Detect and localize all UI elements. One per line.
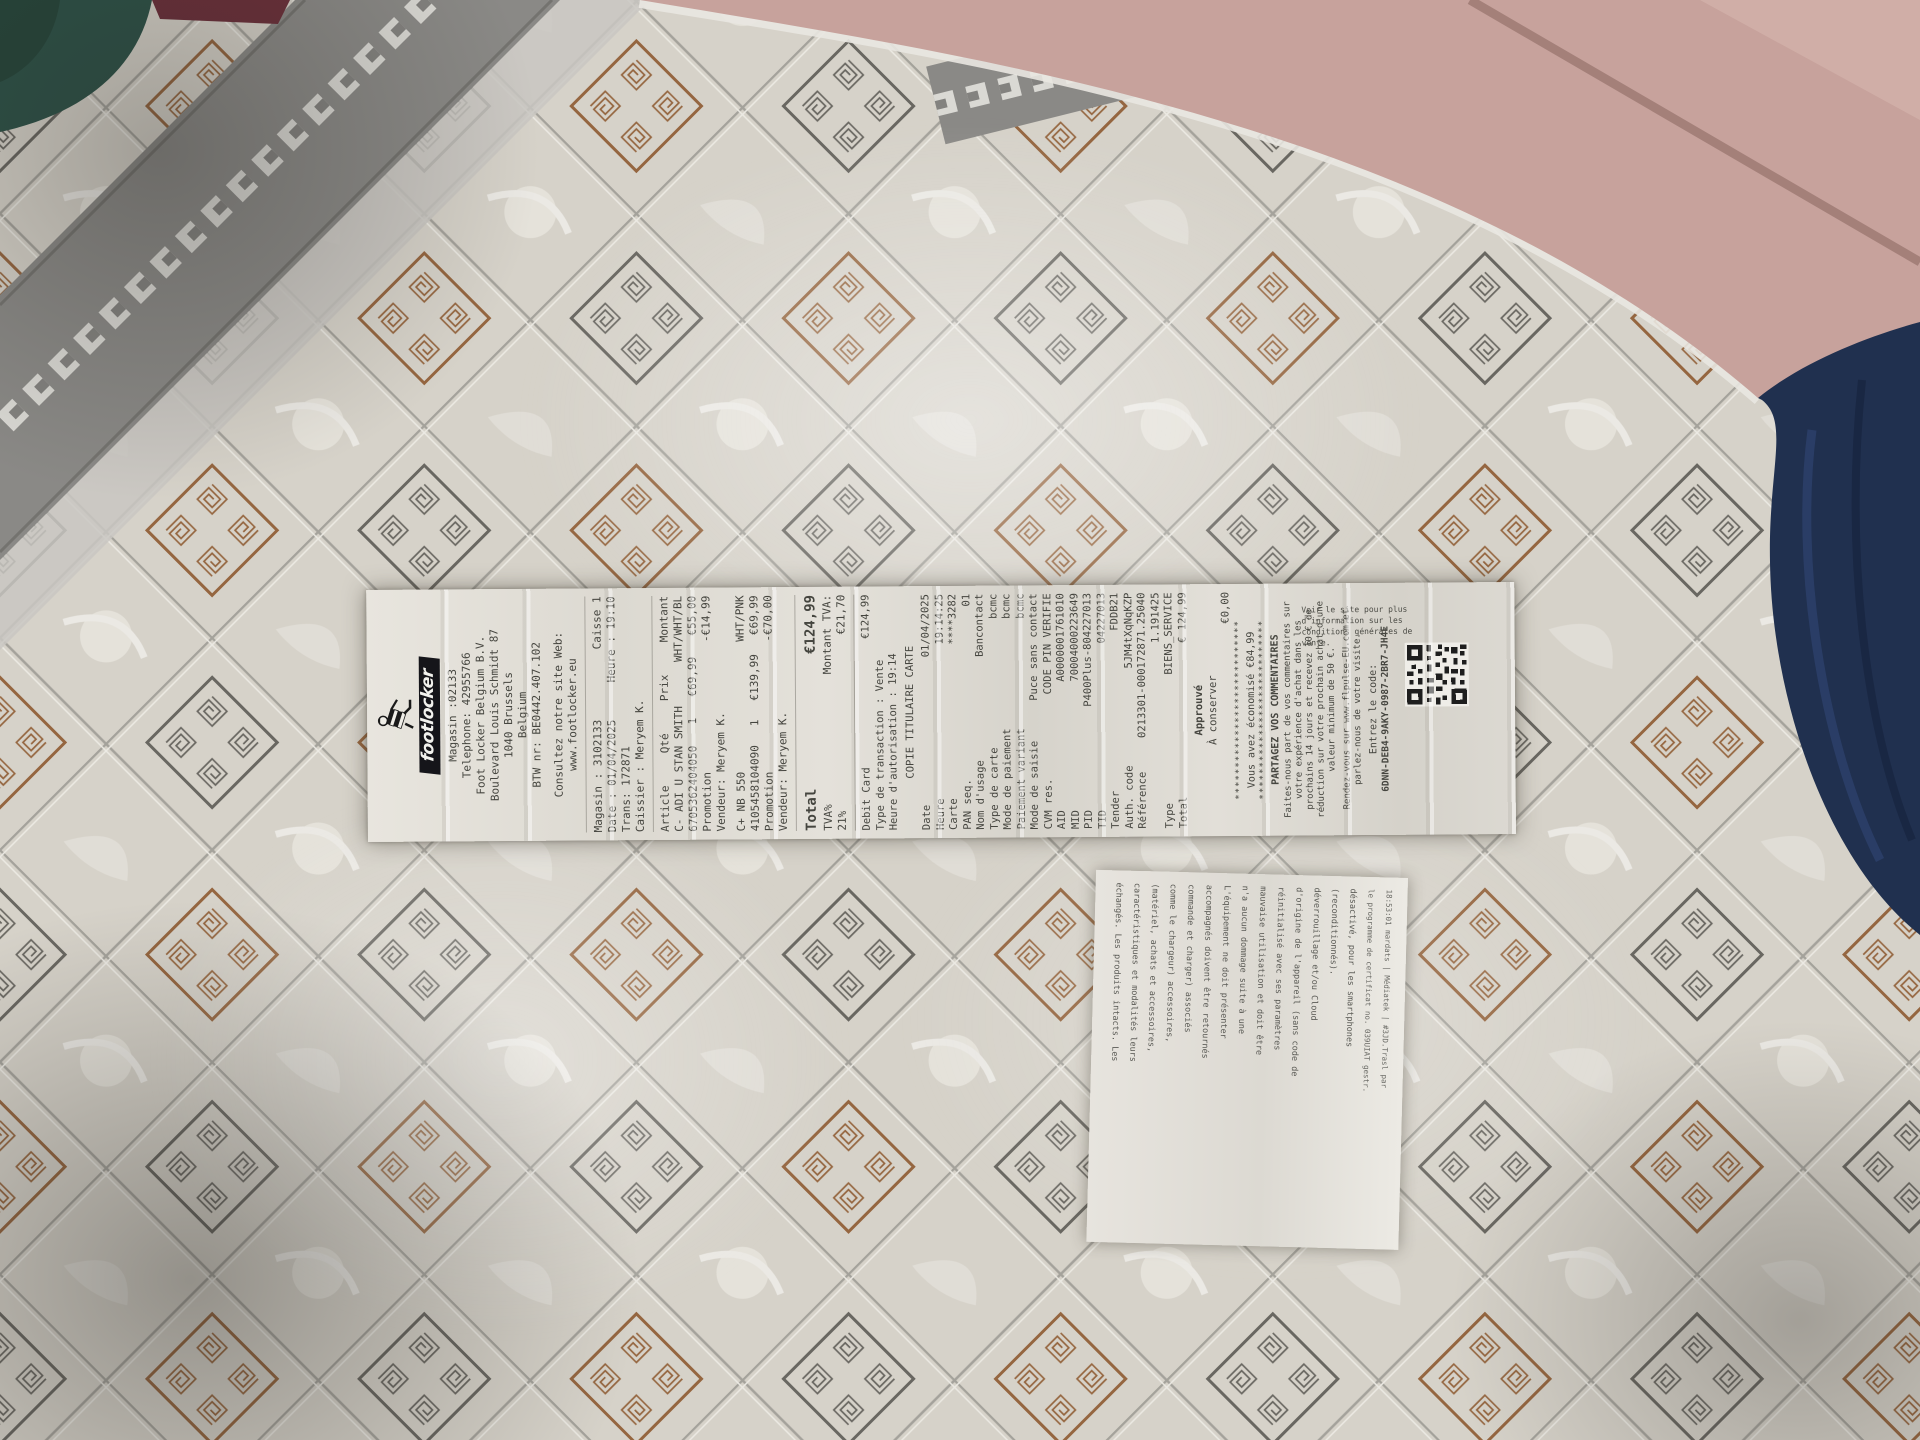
tva-rate: 21% <box>836 811 850 831</box>
item-price: €139,99 <box>748 654 762 700</box>
photo-scene: footlocker Magasin :02133 Telephone: 429… <box>0 0 1920 1440</box>
footlocker-logo: footlocker <box>376 597 441 833</box>
referee-icon <box>377 694 417 738</box>
payment-method: Debit Card <box>860 767 874 830</box>
info-cell: Magasin : 3102133 <box>591 720 606 833</box>
pay-label: Date <box>921 805 935 830</box>
item-amount: €55,00 <box>685 596 699 636</box>
col-price: Prix <box>658 675 672 702</box>
divider <box>853 595 856 831</box>
info-cell: Heure : 19:10 <box>604 596 619 682</box>
tva-amount-label: Montant TVA: <box>820 595 835 675</box>
item-amount: €69,99 <box>747 595 761 635</box>
pay-value: P400Plus-804227013 <box>1081 593 1095 707</box>
stars-divider: **************************** <box>1257 592 1270 828</box>
pay-label: AID <box>1056 810 1070 829</box>
pay-label: Référence <box>1137 772 1164 829</box>
pay-value: 04227013 <box>1095 593 1109 644</box>
seller: Vendeur: Meryem K. <box>714 712 728 831</box>
item-qty: 1 <box>748 719 762 726</box>
store-line: www.footlocker.eu <box>565 597 581 833</box>
seller: Vendeur: Meryem K. <box>776 712 790 831</box>
total-label: Total <box>802 789 822 831</box>
tva-section: TVA%Montant TVA: 21%€21,70 <box>820 595 850 831</box>
info-cell: Caisse 1 <box>590 596 604 649</box>
item-price: €69,99 <box>686 657 700 697</box>
pay-label: Paiement variant <box>1015 728 1029 829</box>
total-amount: €124,99 <box>800 595 820 654</box>
pay-label: CVM res. <box>1042 779 1056 830</box>
receipt: footlocker Magasin :02133 Telephone: 429… <box>366 582 1516 842</box>
item-color: WHT/PNK <box>733 595 747 641</box>
payment-amount: €124,99 <box>859 594 873 638</box>
pay-label: MID <box>1069 810 1083 829</box>
item-sku: 6705362404050 <box>686 746 701 832</box>
pay-label: TID <box>1096 810 1110 829</box>
divider <box>794 595 797 831</box>
promo-amount: -€14,99 <box>699 596 713 642</box>
pay-value: CODE PIN VERIFIE <box>1041 593 1055 694</box>
tva-amount: €21,70 <box>834 595 848 635</box>
store-header: Magasin :02133 Telephone: 42955766 Foot … <box>445 597 581 834</box>
pay-value: 5JM4tXqNqKZP <box>1122 593 1136 669</box>
conditions-side-note: Voir le site pour plus d'information sur… <box>1301 604 1439 629</box>
terms-leaflet: 18:53:01 mardats | Médiatek | #3JD.Trasl… <box>1086 870 1408 1250</box>
item-row: C- ADI U STAN SMITHWHT/WHT/BL 6705362404… <box>671 595 729 831</box>
item-name: C+ NB 550 <box>735 772 749 832</box>
pay-value: ****3282 <box>946 594 960 645</box>
item-row: C+ NB 550WHT/PNK 41054581040901€139,99€6… <box>733 595 791 831</box>
pay-value: bcmc <box>987 594 1001 619</box>
item-color: WHT/WHT/BL <box>671 596 685 662</box>
divider <box>651 596 654 832</box>
col-amount: Montant <box>657 596 671 642</box>
pay-value: 01 <box>960 594 974 607</box>
auth-time: Heure d'autorisation : 19:14 <box>886 594 901 830</box>
pay-label: Nom d'usage <box>974 760 988 830</box>
total-row: Total €124,99 <box>800 595 822 831</box>
pay-value: A0000001761010 <box>1054 593 1068 682</box>
col-article: Article <box>659 786 673 832</box>
info-cell: Trans: 172871 <box>619 746 634 832</box>
pay-value: BIENS_SERVICE <box>1162 592 1176 674</box>
brand-box: footlocker <box>419 656 441 775</box>
pay-value: Puce sans contact <box>1027 593 1041 701</box>
pay-label: Tender <box>1110 791 1124 829</box>
pay-label: Type de carte <box>988 747 1002 829</box>
pay-label: Total <box>1177 797 1191 829</box>
qr-code <box>1404 642 1468 706</box>
item-qty: 1 <box>686 718 700 725</box>
pay-value: 01/04/2025 <box>919 594 933 657</box>
pay-value: € 124,99 <box>1176 592 1190 643</box>
pay-value: 19:14:25 <box>933 594 947 645</box>
payment-section: Debit Card€124,99 Type de transaction : … <box>859 592 1234 831</box>
store-line: Boulevard Louis Schmidt 87 <box>487 597 503 833</box>
info-cell: Date : 01/04/2025 <box>605 720 620 833</box>
item-name: C- ADI U STAN SMITH <box>672 706 687 832</box>
pay-value: 0213301-000172871.250401.191425 <box>1135 592 1163 742</box>
pay-label: Auth. code <box>1123 765 1137 828</box>
divider <box>584 596 587 832</box>
stars-divider: **************************** <box>1233 592 1246 828</box>
pay-label: Type <box>1164 803 1178 828</box>
pay-value: bcmc <box>1000 593 1014 618</box>
promo-label: Promotion <box>701 772 715 832</box>
col-qty: Qté <box>658 733 672 753</box>
pay-value: FDDB21 <box>1108 593 1122 631</box>
pay-label: PID <box>1083 810 1097 829</box>
cardholder-copy: COPIE TITULAIRE CARTE <box>903 594 918 830</box>
promo-amount: -€70,00 <box>761 595 775 641</box>
item-sku: 4105458104090 <box>748 745 763 831</box>
store-line: Consultez notre site Web: <box>551 597 567 833</box>
pay-label: Heure <box>934 798 948 830</box>
pay-label: PAN seq. <box>961 779 975 830</box>
pay-value: bcmc <box>1014 593 1028 618</box>
info-cell: Caissier : Meryem K. <box>633 700 648 833</box>
brand-text: footlocker <box>421 669 436 763</box>
promo-label: Promotion <box>763 772 777 832</box>
pay-label: Carte <box>948 798 962 830</box>
pay-value: 70004000223649 <box>1068 593 1082 682</box>
pay-value: Bancontact <box>973 594 987 657</box>
transaction-info: Magasin : 3102133Caisse 1 Date : 01/04/2… <box>590 596 648 832</box>
pay-label: Mode de saisie <box>1028 741 1042 830</box>
tva-rate-label: TVA% <box>822 804 836 831</box>
pay-label: Mode de paiement <box>1001 728 1015 829</box>
items-section: Article Qté Prix Montant C- ADI U STAN S… <box>657 595 791 832</box>
